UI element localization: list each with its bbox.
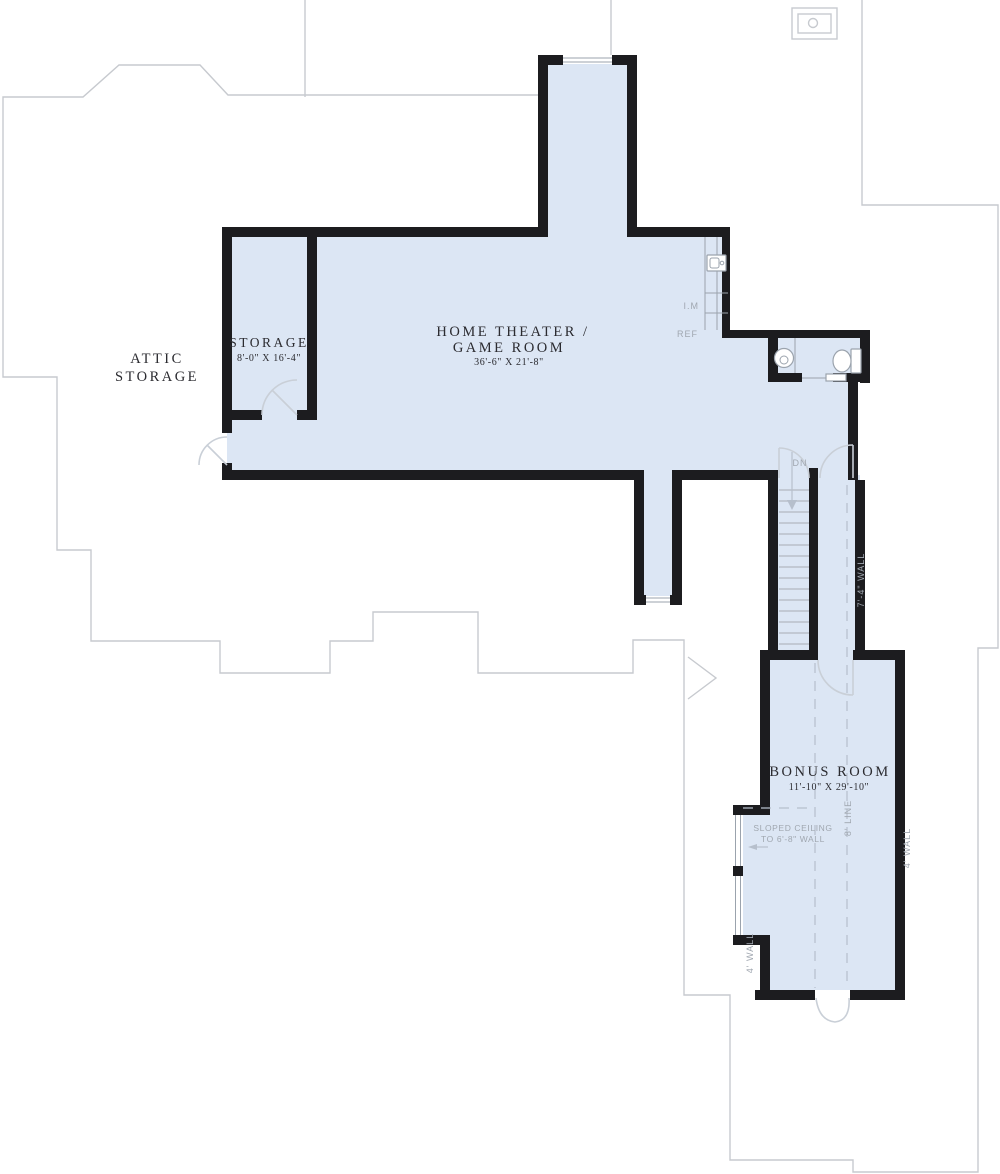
wall-segment: [538, 55, 548, 237]
wall-segment: [538, 55, 563, 65]
wall-segment: [760, 650, 770, 815]
theater-label-line1: HOME THEATER /: [436, 324, 589, 340]
dormer-fill: [639, 470, 677, 600]
theater-bump-out-fill: [548, 60, 627, 237]
bonus-notch-fill: [743, 815, 773, 935]
sloped-ceiling-label-line2: TO 6'-8" WALL: [761, 834, 825, 844]
bathroom-sink: [775, 349, 794, 368]
wall-segment: [672, 470, 682, 605]
theater-top-window: [563, 56, 612, 64]
bonus-room-label: BONUS ROOM: [769, 764, 890, 780]
chimney: [792, 8, 837, 39]
wall-segment: [895, 650, 905, 1000]
bonus-notch-windows: [733, 815, 743, 935]
roof-valley-mark: [688, 657, 716, 699]
theater-label-line2: GAME ROOM: [453, 340, 565, 356]
toilet: [833, 349, 861, 373]
window-glass: [563, 56, 612, 64]
wall-segment: [612, 55, 637, 65]
wall-segment: [637, 227, 730, 237]
ice-maker-label: I.M: [684, 301, 700, 311]
wall-segment: [307, 227, 317, 420]
wall-segment: [222, 410, 262, 420]
eight-foot-line-label: 8' LINE: [843, 800, 853, 836]
bonus-room-dims: 11'-10" X 29'-10": [789, 782, 869, 793]
storage-label: STORAGE: [229, 335, 309, 350]
wall-segment: [222, 227, 232, 433]
down-label: DN: [793, 458, 808, 468]
wall-4-left-label: 4' WALL: [745, 933, 755, 973]
bar-sink: [707, 255, 726, 271]
wall-4-right-label: 4' WALL: [902, 828, 912, 868]
wall-segment: [768, 470, 778, 660]
wall-segment: [809, 468, 818, 655]
wall-segment: [682, 470, 772, 480]
wall-segment: [222, 470, 634, 480]
wall-segment: [670, 595, 682, 605]
wall-segment: [850, 990, 905, 1000]
theater-dims: 36'-6" X 21'-8": [474, 357, 544, 368]
wall-segment: [634, 595, 646, 605]
window-mullion: [733, 866, 743, 876]
wall-segment: [733, 805, 770, 815]
attic-storage-label-line1: ATTIC: [130, 351, 184, 367]
floor-plan: ATTIC STORAGE STORAGE 8'-0" X 16'-4" HOM…: [0, 0, 1000, 1174]
attic-access-door: [199, 437, 227, 465]
wall-segment: [297, 410, 317, 420]
bonus-exterior-door: [816, 998, 849, 1022]
attic-storage-label-line2: STORAGE: [115, 369, 199, 385]
wall-segment: [222, 227, 538, 237]
storage-dims: 8'-0" X 16'-4": [237, 353, 301, 364]
floor-plan-canvas: ATTIC STORAGE STORAGE 8'-0" X 16'-4" HOM…: [0, 0, 1000, 1174]
wall-segment: [722, 237, 730, 332]
chimney-inner: [798, 14, 831, 33]
wall-segment: [627, 55, 637, 237]
chimney-flue: [809, 19, 818, 28]
room-fills: [227, 60, 895, 990]
sloped-ceiling-label-line1: SLOPED CEILING: [753, 823, 832, 833]
wall-segment: [722, 330, 870, 338]
wall-segment: [768, 373, 802, 382]
window-glass: [646, 596, 670, 604]
refrigerator-label: REF: [677, 329, 698, 339]
wall-segment: [755, 990, 815, 1000]
wall-7-4-label: 7'-4" WALL: [856, 553, 866, 608]
chimney-outer: [792, 8, 837, 39]
wall-segment: [634, 470, 644, 605]
dormer-window: [646, 596, 670, 604]
